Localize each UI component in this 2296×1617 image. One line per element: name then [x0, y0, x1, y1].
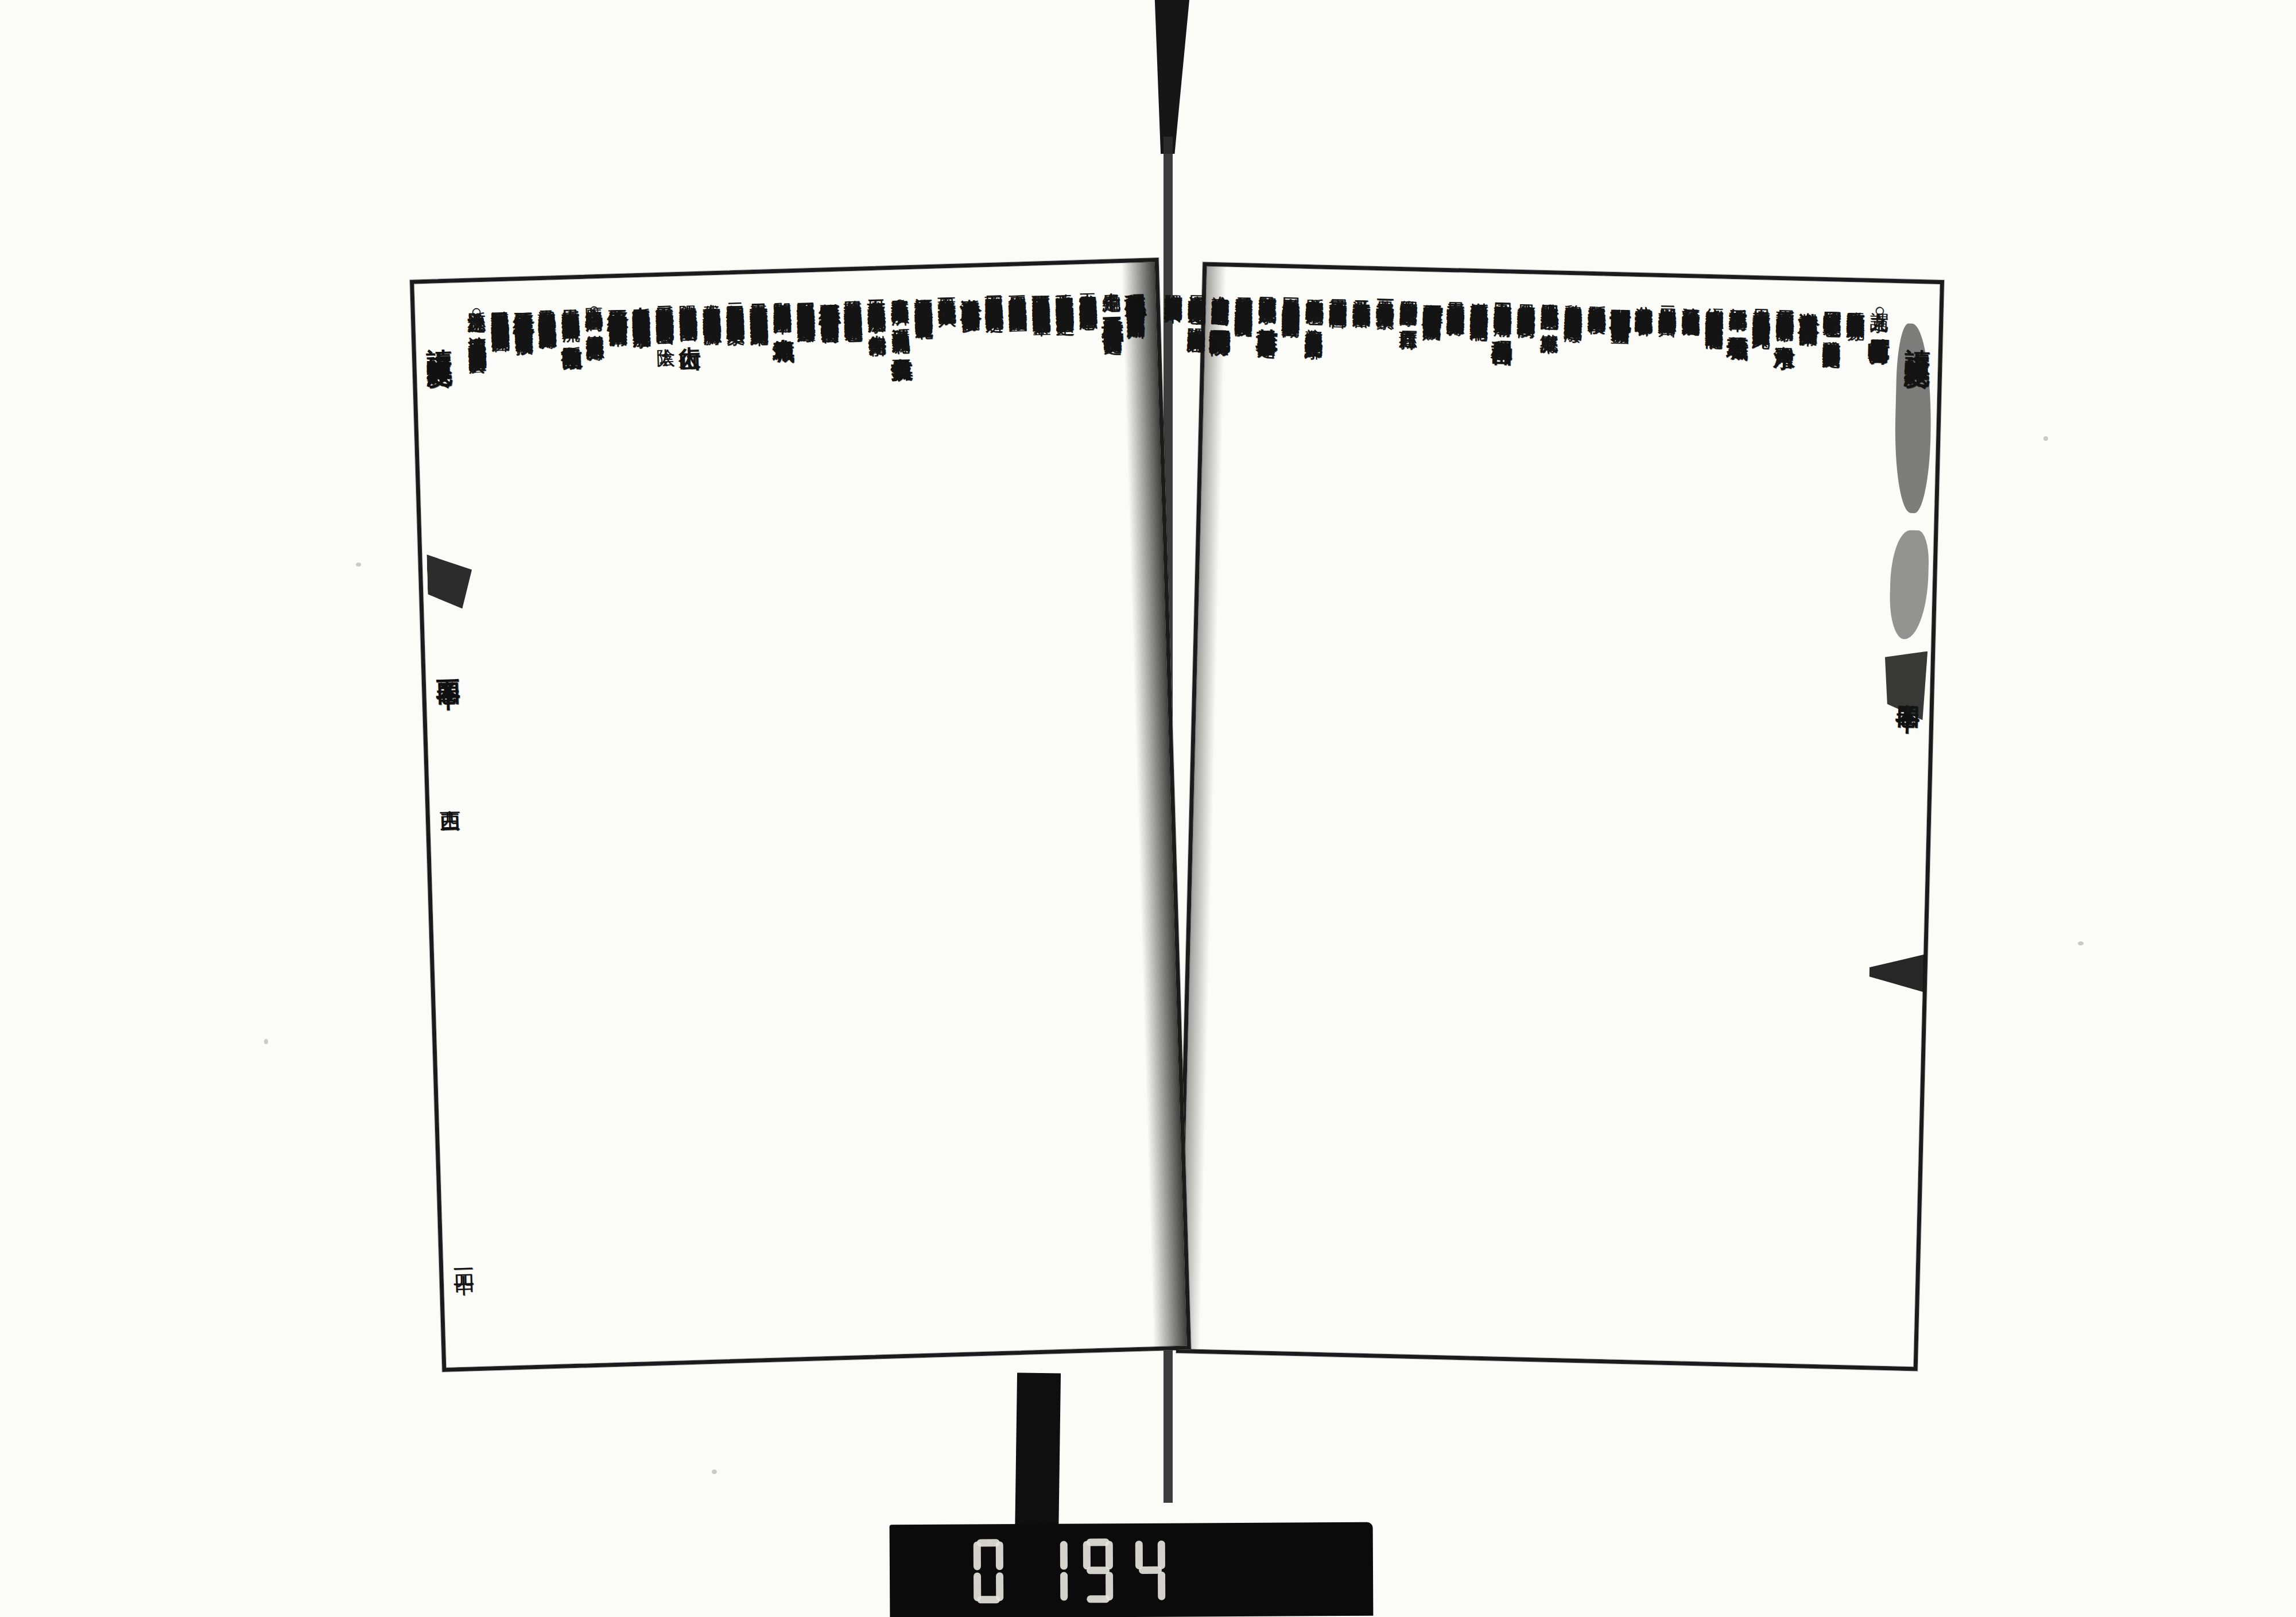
- entry-text: 縣西南二十五里括地志絳水一名白水今名沸泉源出絳山飛泉奮湧注壑積三十餘丈望之極爲奇…: [513, 297, 534, 323]
- entry-text: 三里有葫蘆泉縣西有碧水泉縣東北有白楊泉皆引流溉田注於汾水 十年斛律光擊斬周: [866, 285, 887, 325]
- entry-text: 爲李郢渡夏秋以舟冬爲木橋以濟○漣漹泉出稷神山北流入汾又縣北: [889, 284, 912, 341]
- microfilm-scan: { "film": { "counter": { "digits": "0194…: [0, 0, 2296, 1617]
- right-banxin-book-title: 讀史方輿紀要: [1901, 328, 1935, 349]
- entry-text: 州西二十里北齊時屯兵於此以防: [1210, 316, 1231, 324]
- entry-text: 水經注涑水出聞喜縣黍葭谷謂之華谷又有華水出焉齊將斛律光爭汾北出晉州道於汾北築華谷…: [1704, 293, 1725, 318]
- entry-text: 橫嶺志云涑水出嶺之乾洞伏流盤東地中至聞喜縣界始出而西流云: [560, 294, 581, 329]
- entry-text: 政守玉壁以斷其道歡攻圍之不能克十二年韋孝寬代思政鎮玉壁高歡自鄴會兵於晉陽至玉壁圍…: [1054, 279, 1075, 303]
- entry-text: 縣晉屬平陽郡後魏置南絳縣又置南絳郡治焉後周廢郡改縣爲絳縣尋置晉州建德五年州廢仍置…: [795, 287, 816, 311]
- entry-text: 縣西北二十里: [1728, 323, 1748, 327]
- entry-text: 在州南自曲沃縣流入境又西入稷山縣界水經注汾水南至臨汾縣東又: [1798, 298, 1820, 315]
- counter-digit: [1038, 1539, 1068, 1603]
- left-banxin-volume: 卷四十一: [431, 661, 463, 672]
- entry-text: 括地志王澤在州南三十里: [1728, 294, 1749, 320]
- entry-text: 魏太和中分龍門縣置高涼縣後又置高涼郡領高涼縣絳州隋初移於正平此城遂廢: [1564, 290, 1585, 310]
- entry-text: 狄又宣十二年赤狄伐晉及清原也又成十八年晉: [1352, 285, 1372, 297]
- entry-text: 北二十里春秋僖三十一年晉蒐於清原作五軍以禦: [1375, 285, 1397, 298]
- entry-text: 在縣東南: [773, 325, 793, 328]
- entry-text: 因以名又馬壁谷水在州南宋國史熙甯八年都水監丞程師孟言正平縣南有馬壁谷水臣向嘗勸: [1281, 283, 1302, 306]
- entry-text: 州北十五里出九原山其上有堆如覆釜形履之如: [1257, 315, 1278, 327]
- entry-text: 在縣北卽高齊斛律光所築以爭汾北者五代志稷山縣有後魏龍門郡城蓋: [1611, 294, 1632, 312]
- digit-segment: [1060, 1541, 1068, 1570]
- entry-text: 縣西南十二里西魏大統四年東道行臺王思政以玉壁險要請築城自恆農徙鎮之: [1102, 303, 1123, 323]
- scan-speckle: [712, 1469, 717, 1474]
- scan-speckle: [2043, 436, 2048, 441]
- left-banxin-book-title: 讀史方輿紀要: [421, 327, 456, 349]
- digit-segment: [1139, 1566, 1162, 1574]
- right-page-text-columns: 謂之九京○峨眉山在州南十里志云山迤邐連聞喜夏猗氏臨晉滎河諸縣界西抵黃河東抵曲沃西…: [1190, 281, 1891, 1348]
- ink-smear: [1889, 530, 1930, 640]
- entry-text: 進攻古堆絳郡守陳叔達不下高祖拔之或謂之鼓山: [1210, 281, 1231, 313]
- entry-text: 今編戶七里: [1101, 278, 1122, 300]
- digit-segment: [974, 1541, 981, 1570]
- entry-text: 謂之九京○: [1869, 297, 1890, 321]
- entry-text: 郡隋初郡廢縣屬絳州唐初縣屬澮州尋復屬絳州今編戶四十里: [771, 288, 793, 322]
- entry-text: 玉壁宇文泰從之因以思政爲幷州刺史鎮玉壁八年高歡伐魏入自汾絳連營四十里思: [1077, 278, 1099, 299]
- left-banxin-section: 山西三: [435, 793, 463, 799]
- entry-text: 山又譌爲罩山卽山海經所云敎山敎水出焉者也孔穎達云乾河之源出於此山之南入垣曲縣界: [536, 294, 557, 317]
- scan-speckle: [356, 563, 361, 567]
- digit-segment: [1087, 1595, 1110, 1603]
- counter-digit: [974, 1539, 1004, 1603]
- digit-segment: [974, 1572, 981, 1601]
- entry-text: 鼓聲水分二派東曰清泉西曰灰泉引入州城以注於汾水水經注謂之古水其堆亦曰古堆唐初義師: [1234, 282, 1255, 305]
- entry-text: 山在縣東南十里崖壁峭絕陽景不到接連太行勢極高下有沸泉峽懸流奔墜一十餘丈西北流注於…: [630, 292, 651, 316]
- film-leader-mark-bottom: [1015, 1372, 1061, 1543]
- entry-text: 縣東二十里山甚高險西北諸山多其支委或謂之南山卽元末察罕敗賊處餘詳見河南名山○太陰: [654, 291, 676, 335]
- left-banxin-leaf-number: 四十一: [449, 1258, 477, 1259]
- entry-text: 州東南百里北至曲沃縣九十里春秋時晉新田之地漢爲絳縣屬河東郡高帝六年封華無害爲侯國: [819, 289, 840, 312]
- right-banxin-volume: 卷四十: [1892, 685, 1924, 692]
- entry-text: 在縣西唐史河西賊屯聚摩雲山山絕高民保聚其上寇盜無能近龍紀初澤州賊: [1422, 290, 1444, 309]
- entry-text: 四面並臨深谷後周置勳州總管府又改一統志縣有清源城晉文公蒐作五軍之所: [983, 281, 1004, 301]
- entry-heading: 太行山: [677, 329, 701, 333]
- entry-text: 氏臨晉滎河諸縣界西抵黃河東抵曲沃西境亦曰: [1846, 297, 1867, 309]
- right-page-scan: 謂之九京○峨眉山在州南十里志云山迤邐連聞喜夏猗氏臨晉滎河諸縣界西抵黃河東抵曲沃西…: [1176, 262, 1944, 1371]
- entry-text: 州西五十里本漢聞喜縣地後魏置高涼縣隋開皇初郡廢十八年改曰稷山唐因之光化初屬河中府…: [1124, 281, 1146, 307]
- entry-text: 汾陽銅源等錢監天下鑪九十九絳州居其三十云: [1163, 280, 1184, 292]
- entry-text: 泰伐齊自宏農爲橋濟河至建州卽此城也宋白曰絳縣本理車箱城隋移今治齊子嶺見河南濟源縣…: [701, 290, 723, 335]
- entry-text: 民開渠溉田五百餘頃是也下流俱入汾水: [1257, 282, 1278, 312]
- digit-segment: [996, 1541, 1003, 1570]
- entry-text: 二年高歡圍玉壁別使侯景將兵趨齊子嶺魏建州刺史楊標鎮車箱恐其寇邵郡帥騎禦之十六年宇…: [724, 289, 746, 313]
- entry-text: 在縣西北高齊天保: [891, 344, 912, 349]
- entry-text: 縣北寰宇記安邑縣北五十里有清原也○龍谷水在州東北十八里春秋昭二十九年龍見於絳郊水: [1304, 284, 1326, 328]
- entry-text: 帥李罕之攻拔之時人謂之李摩雲○青原在縣西: [1398, 286, 1420, 319]
- entry-text: 里自曲沃流入境至州南之王澤合於汾水春秋晉智伯攻趙襄子奔晉陽原過後從至於王澤卽此: [1751, 294, 1773, 317]
- entry-text: 汾水北改曰稷山縣或作高梁誤也○廉城在縣東: [1539, 289, 1561, 322]
- counter-digit: [1083, 1538, 1114, 1603]
- scan-speckle: [264, 1039, 268, 1044]
- entry-text: 縣東南八十五里亦曰効: [561, 331, 581, 338]
- entry-text: 縣爲涑水之上源○澮河在縣東北四十里地名大交鎮澮水別源出焉西北流會山谿諸水至曲沃會…: [466, 297, 487, 342]
- digit-segment: [1106, 1541, 1113, 1569]
- left-page-text-columns: 稷山縣州西五十里本漢聞喜縣地後魏置高涼縣隋開皇初郡廢十八年改曰稷山唐因之光化初屬…: [464, 277, 1177, 1349]
- ink-blotch: [426, 553, 473, 610]
- entry-text: 十里志云晉侯處羣公子之所城東西形長如車箱故名西魏大統五年嘗修此城爲戍守處又僑置建…: [748, 288, 769, 314]
- entry-text: 十里高十三里相傳后稷始播穀於此志云山之麓跨萬泉安邑聞喜夏縣界: [1446, 287, 1467, 305]
- left-page-scan: 稷山縣州西五十里本漢聞喜縣地後魏置高涼縣隋開皇初郡廢十八年改曰稷山唐因之光化初屬…: [410, 258, 1191, 1372]
- entry-text: 分遣宇文招自華谷攻齊汾北諸城是也今名華谷邨: [1634, 292, 1655, 304]
- ink-wedge: [1869, 953, 1925, 992]
- digit-segment: [1087, 1566, 1110, 1574]
- entry-text: 以挑西師不出歡百計攻圍晝夜不息孝寬隨機拒守用術士孤虛法聚攻其北北天險也智力俱盡卒: [1030, 280, 1052, 304]
- entry-text: 逆周子於京師而立之大夫逆於清原杜預曰在聞喜: [1328, 284, 1349, 297]
- entry-text: 縣西北二十五里山出鐵亦名紫金山蓋絳山與曲沃縣接界志云絳山西入聞喜縣東: [607, 295, 628, 315]
- entry-text: 諸築華谷長秋二城以杜齊人爭汾北之路不聽旣而: [1681, 293, 1702, 305]
- entry-text: 以此灌平陽胡氏曰此正絳水利以灌平陽之說然括地志亦因舊文強爲附會耳志云絳水西流入聞…: [489, 296, 510, 320]
- digit-segment: [1158, 1572, 1165, 1600]
- entry-text: 不能拔周保定初置勳州於此以旌孝寬之功後又嘗移絳州治此通釋玉壁城周八里: [1007, 281, 1028, 301]
- entry-text: 以名縣水經注山下有稷亭春秋宣十五年晉侯治兵於稷以略狄土者也山東西二十里南北三: [1469, 288, 1491, 310]
- entry-text: 圍玉壁時所築也又縣西三里有稷王城亦周齊時戍守處以稷王廟而名: [1492, 288, 1514, 324]
- entry-text: 在縣南十里自絳州流入境高歡圍玉壁城中無水汲於汾歡使移汾一夕: [960, 284, 981, 301]
- entry-text: 北十里相傳趙將廉頗戍守之地今曰廉城邨又高歡城在縣西五里高歡攻: [1517, 289, 1538, 307]
- digit-segment: [1158, 1541, 1165, 1569]
- entry-text: 曲陽城在縣東南魏邑也漢初曹參追擊魏豹於曲陽卽此或曰在曲沃之陽故曰曲陽: [677, 290, 699, 329]
- film-frame-counter: [890, 1522, 1374, 1617]
- entry-text: 屈從縣南西流謂之汾水唐德宗時州臣嘗引汾水灌田萬三千餘頃: [1775, 295, 1796, 330]
- digit-segment: [1060, 1572, 1068, 1601]
- entry-text: 河津縣界志云今縣西南十二里有玉壁渡元魏時於汾水北置關後爲渡其南又有景邨渡後徙而西…: [913, 284, 934, 308]
- entry-text: 縣南五十里隋因: [1492, 327, 1513, 332]
- entry-text: 縣本後魏龍門縣地也又高涼城在縣東南三十里後: [1587, 290, 1608, 303]
- counter-digit: [1135, 1538, 1166, 1603]
- film-leader-mark-top: [1153, 0, 1189, 154]
- entry-text: 而畢蓋於上流決水移之不使近城也汾水又西入: [936, 283, 957, 295]
- digit-segment: [1083, 1541, 1091, 1569]
- entry-text: 周通典州南七里有故家雀關亦周齊時戍守處也○汾陽監在州北唐食貨志絳州有: [1186, 281, 1208, 321]
- entry-text: 距白馬山絳水出其谷內○橫山在縣南四十里東南跨垣曲縣界: [583, 293, 605, 329]
- digit-segment: [1135, 1541, 1143, 1569]
- entry-text: 在州南十里志云山迤邐連聞喜夏猗: [1869, 324, 1890, 334]
- ink-smear: [1893, 323, 1933, 513]
- scan-speckle: [2078, 941, 2084, 945]
- entry-text: 二城與周人相持此卽斛律光所築者建德五年圍晉州: [1658, 292, 1679, 305]
- entry-text: 將曹回公柏谷城主薛禹生棄城走光遂取文侯鎮立柵置戍而還柏谷城或云亦在縣境非河南之柏…: [842, 285, 863, 310]
- entry-text: 峨眉坡亦曰峨眉原卽中條之坡阜也○鳴雞坡在州北六里卽趙宣子食翳桑餓人處: [1822, 296, 1844, 337]
- entry-text: 在州東南四十: [1775, 332, 1795, 336]
